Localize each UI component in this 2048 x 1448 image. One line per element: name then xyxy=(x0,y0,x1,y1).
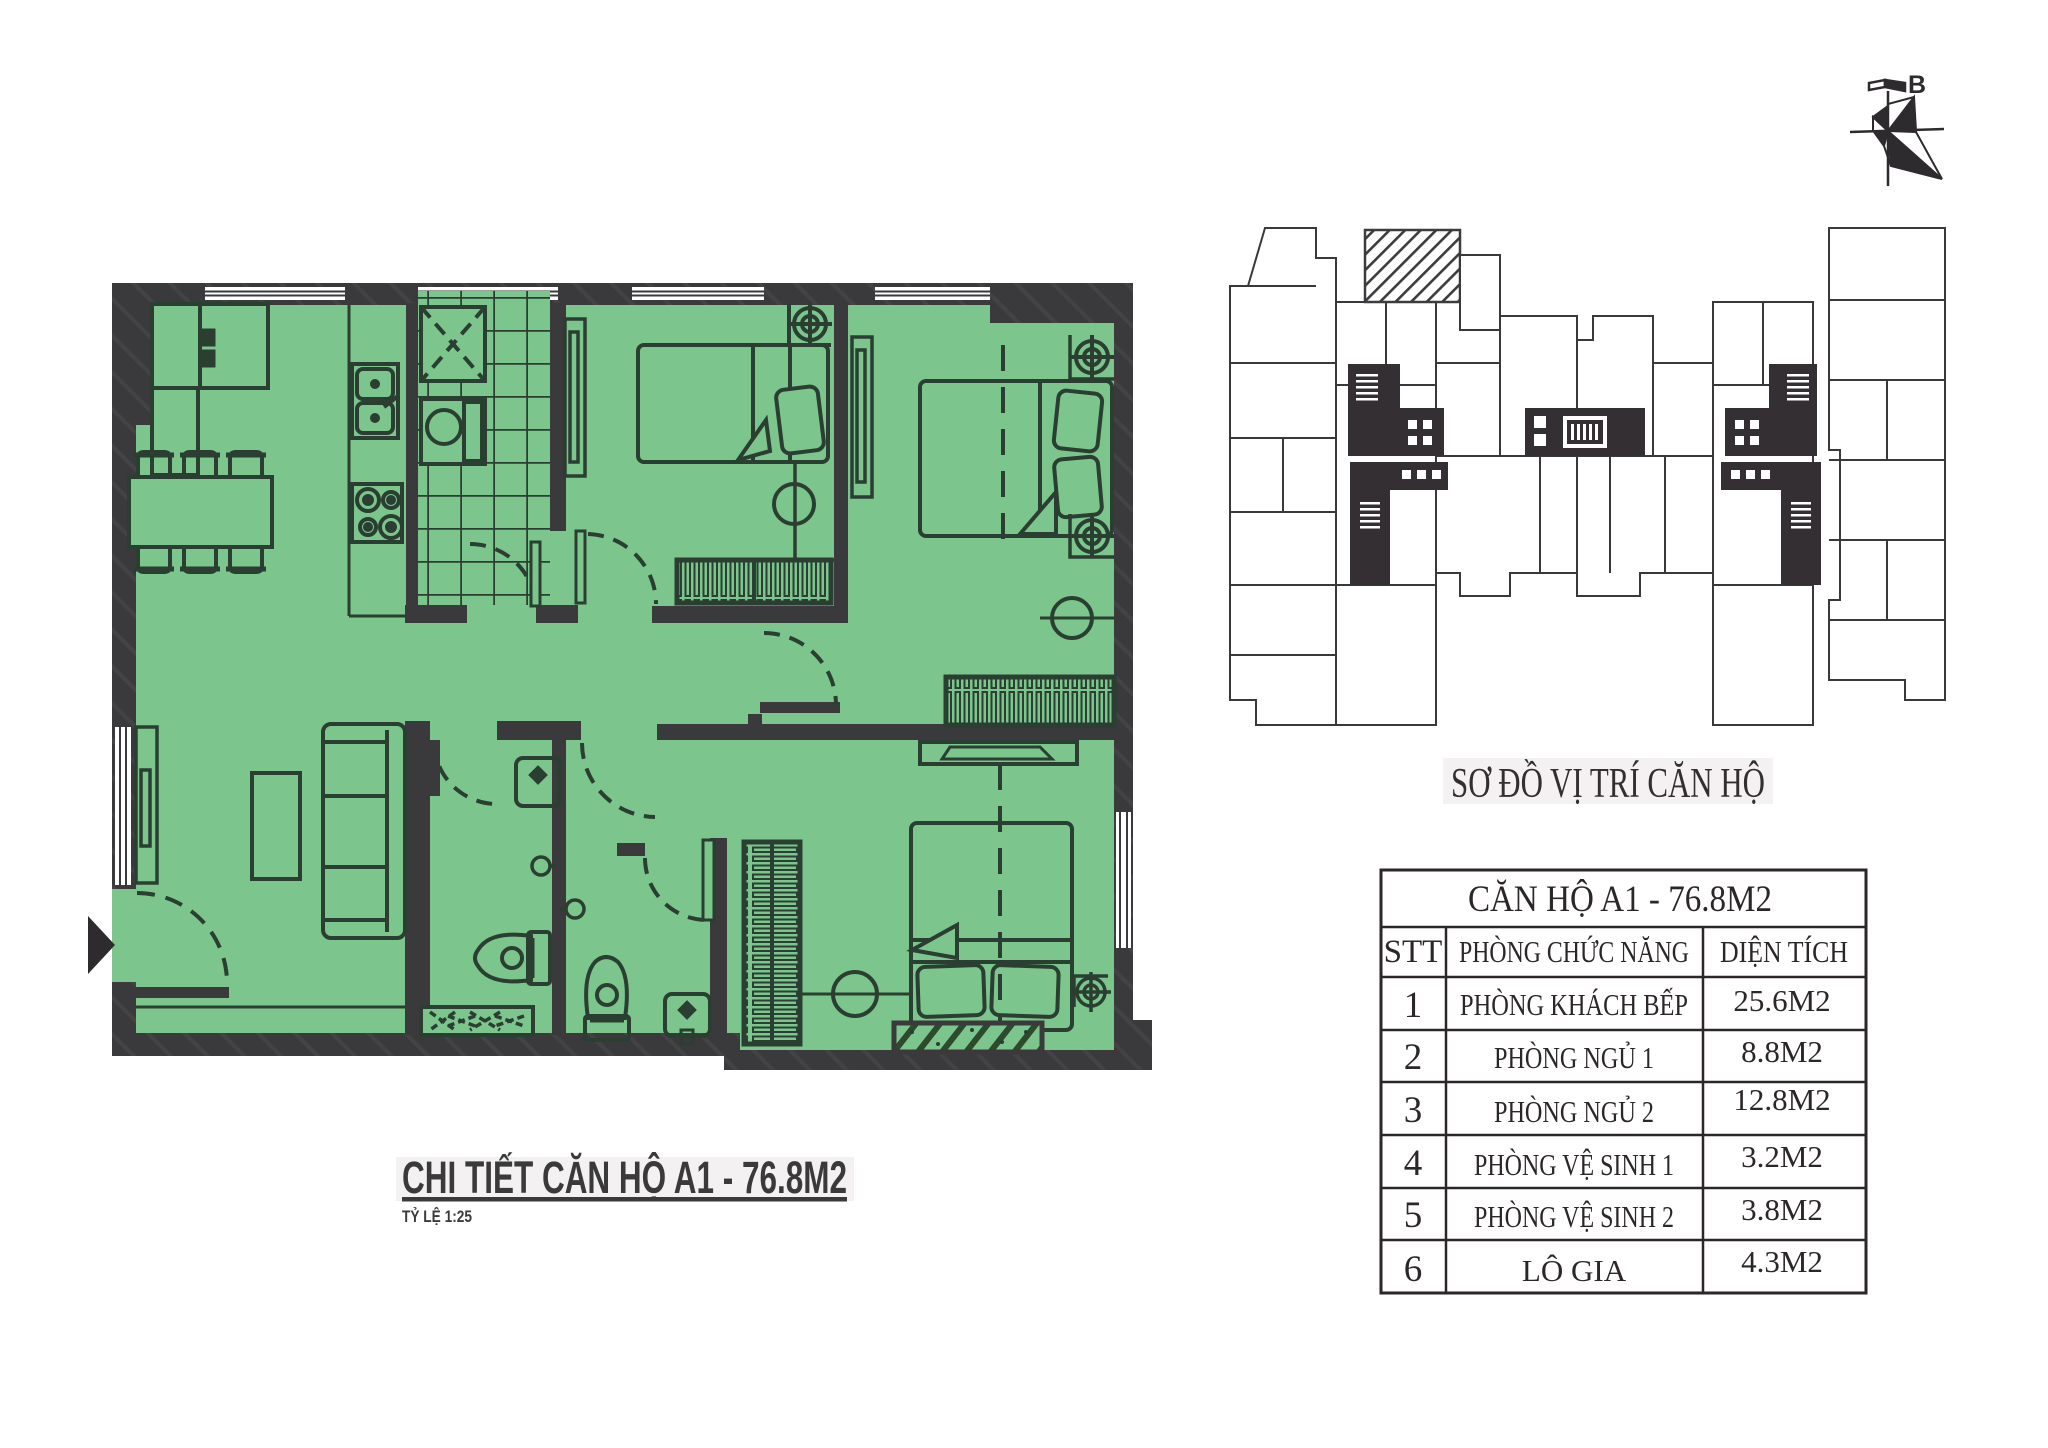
svg-text:CHI TIẾT CĂN HỘ A1 - 76.8M2: CHI TIẾT CĂN HỘ A1 - 76.8M2 xyxy=(402,1152,847,1203)
svg-text:TỶ LỆ 1:25: TỶ LỆ 1:25 xyxy=(402,1207,472,1226)
svg-text:4: 4 xyxy=(1404,1143,1423,1184)
svg-text:3: 3 xyxy=(1404,1090,1423,1131)
svg-text:LÔ GIA: LÔ GIA xyxy=(1522,1253,1627,1288)
svg-text:CĂN HỘ A1 - 76.8M2: CĂN HỘ A1 - 76.8M2 xyxy=(1468,878,1772,920)
svg-text:25.6M2: 25.6M2 xyxy=(1733,983,1830,1018)
svg-text:PHÒNG NGỦ 2: PHÒNG NGỦ 2 xyxy=(1494,1094,1654,1129)
svg-text:12.8M2: 12.8M2 xyxy=(1733,1082,1830,1117)
svg-text:PHÒNG KHÁCH BẾP: PHÒNG KHÁCH BẾP xyxy=(1460,987,1688,1022)
svg-text:3.8M2: 3.8M2 xyxy=(1741,1192,1823,1227)
svg-text:SƠ ĐỒ VỊ TRÍ CĂN HỘ: SƠ ĐỒ VỊ TRÍ CĂN HỘ xyxy=(1451,759,1765,807)
svg-text:DIỆN TÍCH: DIỆN TÍCH xyxy=(1720,934,1848,969)
svg-text:B: B xyxy=(1908,71,1926,99)
svg-text:5: 5 xyxy=(1404,1195,1423,1236)
svg-text:PHÒNG CHỨC NĂNG: PHÒNG CHỨC NĂNG xyxy=(1459,934,1689,969)
svg-text:PHÒNG VỆ SINH 2: PHÒNG VỆ SINH 2 xyxy=(1474,1199,1674,1234)
svg-text:4.3M2: 4.3M2 xyxy=(1741,1244,1823,1279)
svg-text:PHÒNG VỆ SINH 1: PHÒNG VỆ SINH 1 xyxy=(1474,1147,1674,1182)
svg-text:8.8M2: 8.8M2 xyxy=(1741,1034,1823,1069)
svg-text:2: 2 xyxy=(1404,1037,1423,1078)
svg-text:PHÒNG NGỦ 1: PHÒNG NGỦ 1 xyxy=(1494,1040,1654,1075)
svg-text:STT: STT xyxy=(1384,934,1443,970)
svg-text:1: 1 xyxy=(1404,985,1423,1026)
svg-text:6: 6 xyxy=(1404,1249,1423,1290)
svg-text:3.2M2: 3.2M2 xyxy=(1741,1139,1823,1174)
